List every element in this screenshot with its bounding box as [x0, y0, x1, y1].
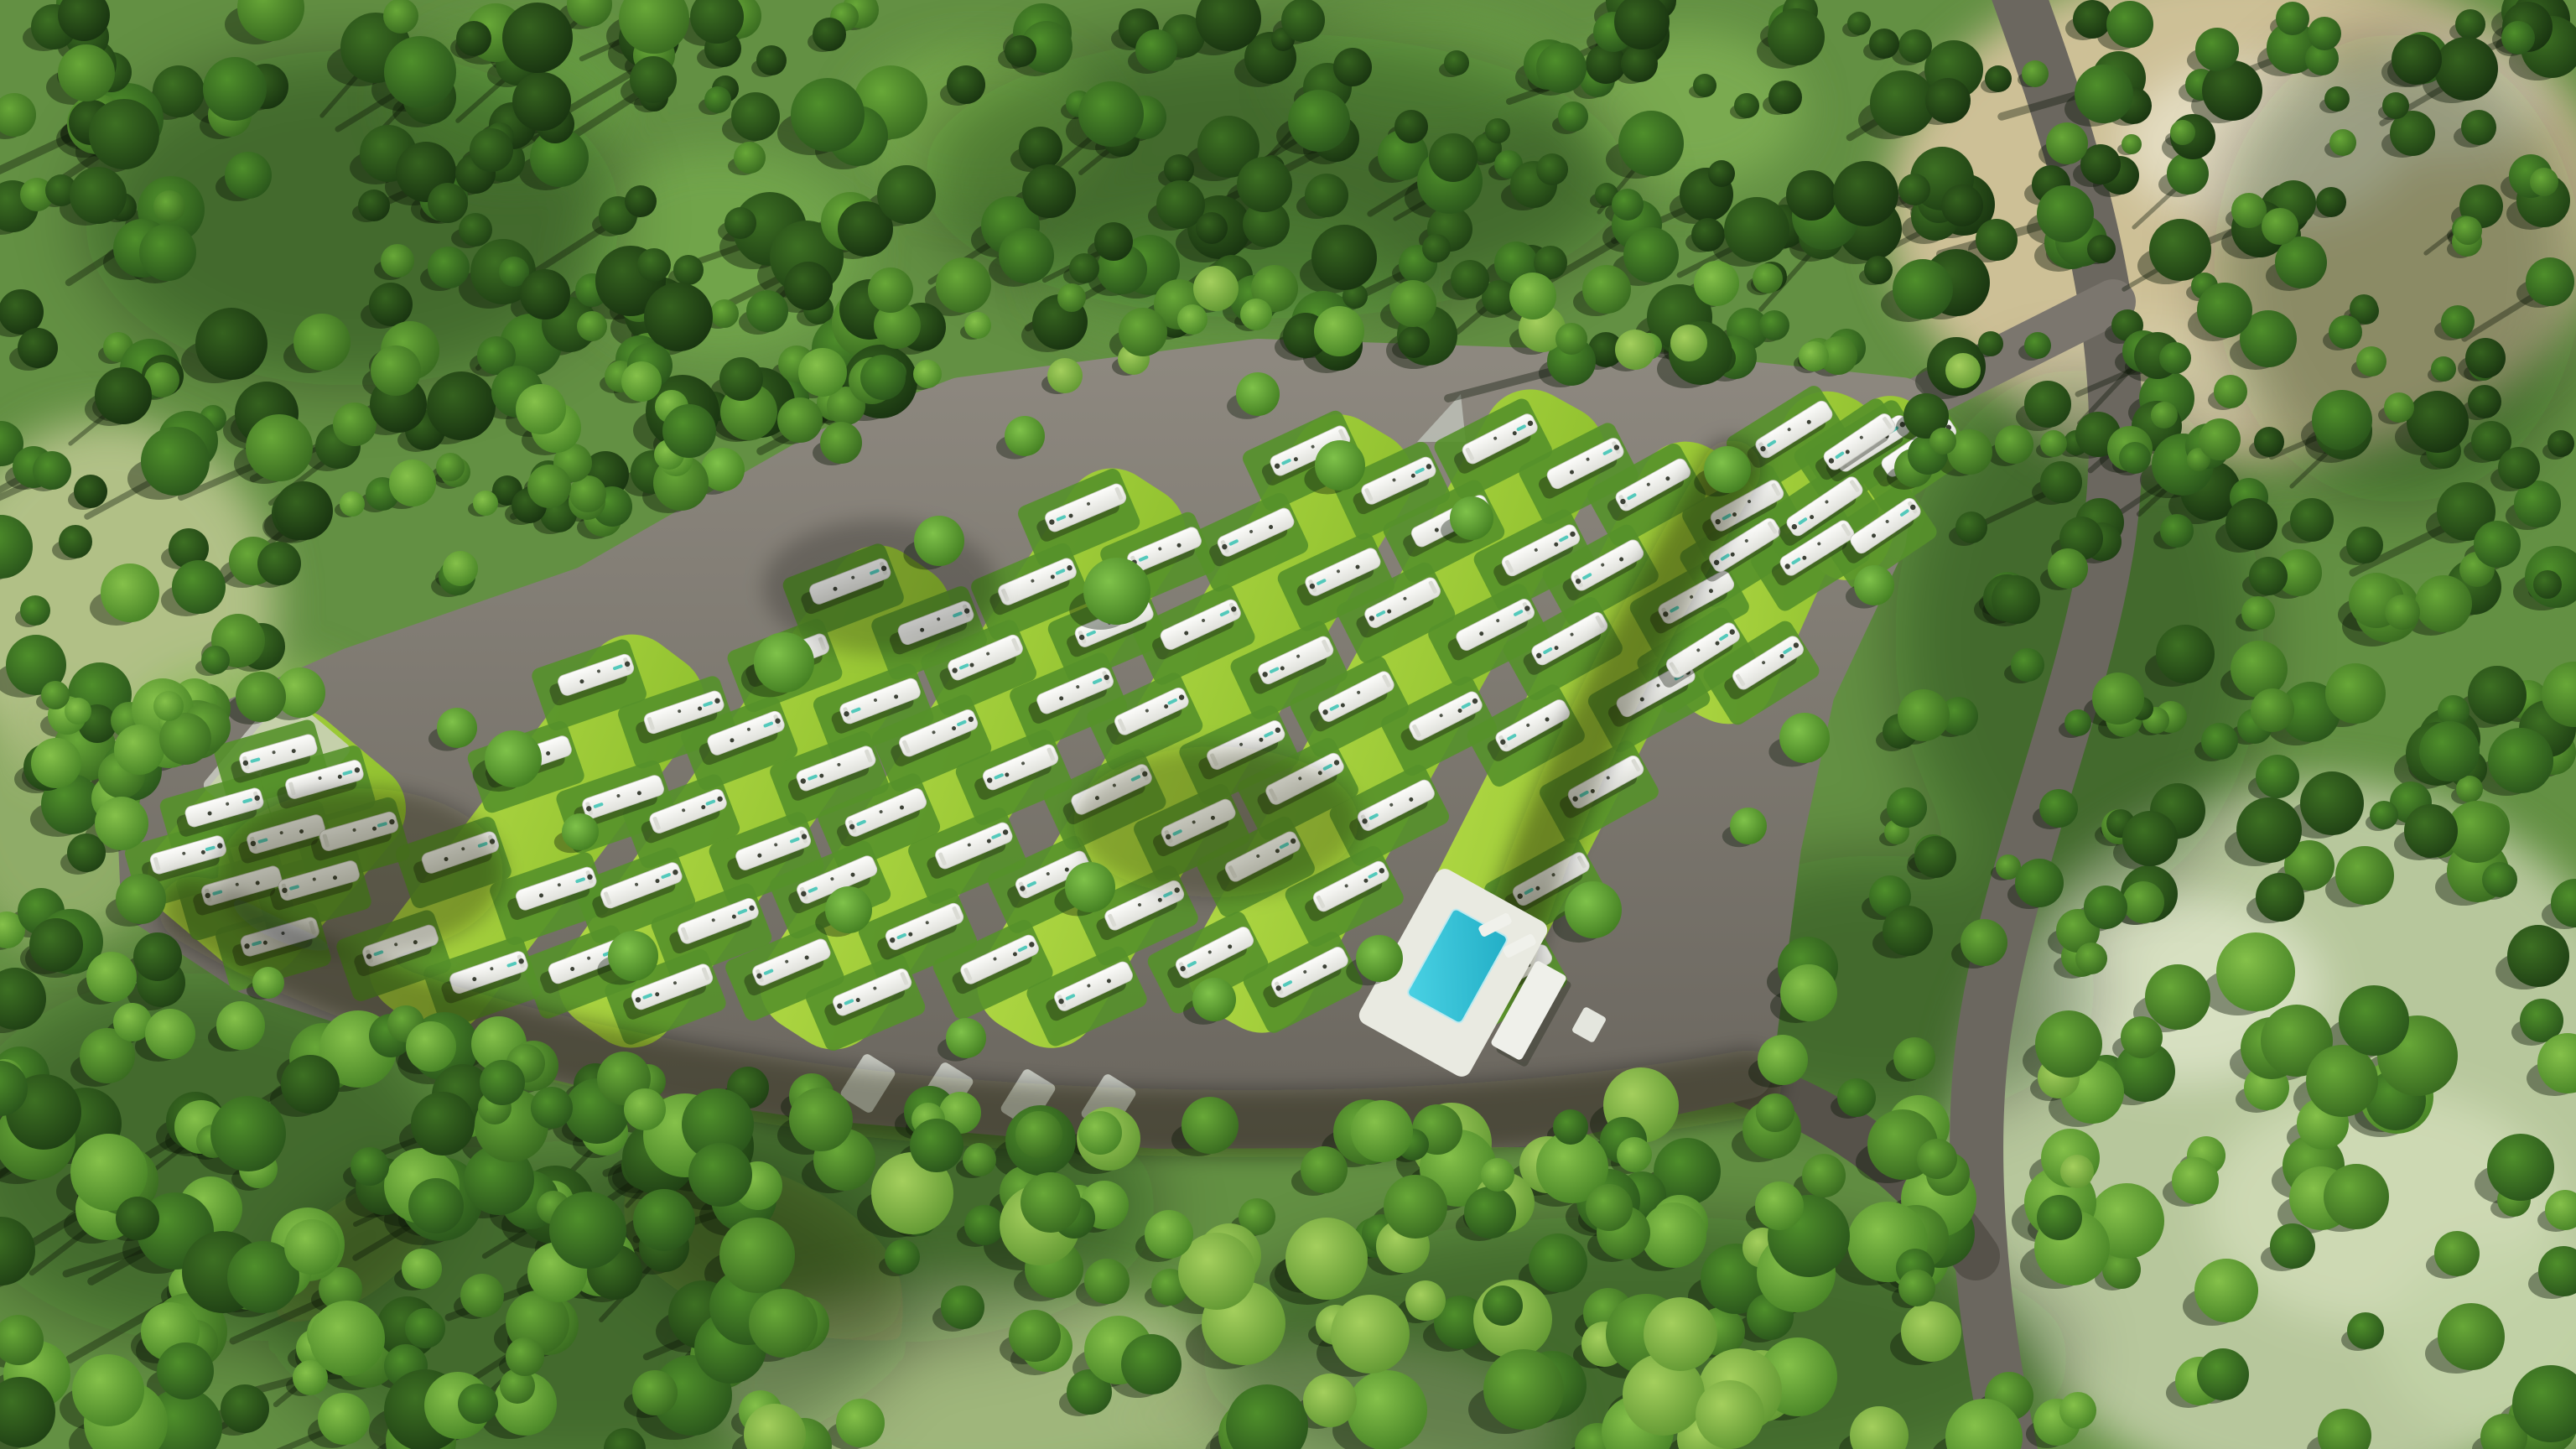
tree [1065, 862, 1115, 912]
tree [1356, 935, 1403, 982]
aerial-render [0, 0, 2576, 1449]
tree [1315, 440, 1365, 491]
tree [1450, 496, 1493, 540]
tree [608, 931, 658, 981]
tree [754, 632, 814, 693]
tree [946, 1018, 986, 1058]
tree [437, 708, 477, 748]
tree [1005, 416, 1045, 456]
tree [1192, 978, 1236, 1021]
tree [1779, 713, 1830, 763]
tree [1083, 558, 1150, 625]
tree [914, 516, 964, 566]
tree [1854, 565, 1894, 605]
aerial-render-figure: Aerial 3D rendering of a caravan holiday… [0, 0, 2576, 1449]
tree [1704, 446, 1751, 493]
tree [1730, 808, 1767, 844]
tree [825, 886, 872, 933]
tree [562, 813, 599, 850]
aerial-render-canvas [0, 0, 2576, 1449]
tree [1236, 372, 1280, 416]
tree [485, 730, 542, 787]
tree [1565, 881, 1622, 938]
